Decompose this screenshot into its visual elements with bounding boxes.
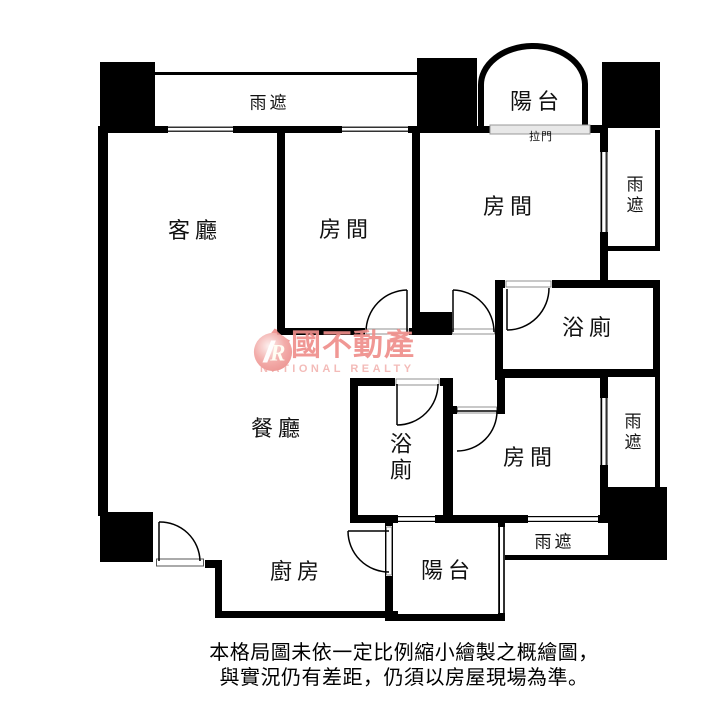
canopy-label-right-upper: 雨遮 [621, 175, 646, 217]
room-label-balcony-top: 陽台 [508, 84, 564, 116]
canopy-label-right-lower: 雨遮 [619, 412, 644, 454]
room-label-living-room: 客廳 [166, 213, 222, 245]
room-label-bedroom-top-right: 房間 [481, 189, 537, 221]
room-label-bathroom-master: 浴廁 [560, 310, 616, 342]
room-label-dining-room: 餐廳 [249, 411, 305, 443]
room-label-balcony-bottom: 陽台 [419, 553, 475, 585]
sliding-door-label: 拉門 [529, 128, 553, 144]
room-label-kitchen: 廚房 [268, 554, 324, 586]
walls [98, 125, 660, 621]
canopy-label-bottom: 雨遮 [534, 528, 575, 553]
room-label-bedroom-bottom-right: 房間 [501, 440, 557, 472]
room-label-bedroom-top-middle: 房間 [317, 212, 373, 244]
floor-plan-drawing [0, 0, 722, 709]
room-label-bathroom-small: 浴廁 [383, 432, 415, 484]
canopy-label-top: 雨遮 [249, 89, 290, 114]
floor-plan: 客廳 房間 房間 浴廁 餐廳 浴廁 房間 廚房 陽台 陽台 拉門 雨遮 雨遮 雨… [0, 0, 722, 709]
disclaimer-line-2: 與實況仍有差距，仍須以房屋現場為準。 [220, 661, 589, 690]
